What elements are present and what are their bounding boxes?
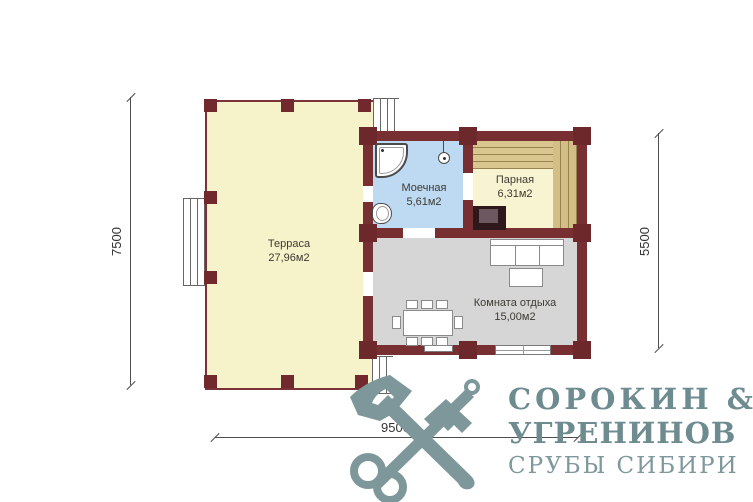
window	[424, 345, 453, 352]
brand-tagline: СРУБЫ СИБИРИ	[508, 450, 753, 482]
log-post	[359, 224, 377, 242]
log-post	[573, 127, 591, 145]
chair-icon	[392, 316, 401, 329]
coffee-table-icon	[509, 268, 543, 287]
log-post	[573, 224, 591, 242]
dimension-tick	[654, 129, 663, 138]
door-terrace-rest	[363, 272, 373, 296]
dimension-line-right	[658, 133, 659, 348]
terrace-post	[281, 375, 294, 388]
dining-table-icon	[403, 310, 453, 336]
chair-icon	[436, 300, 448, 309]
room-area: 15,00м2	[455, 310, 575, 324]
shower-head-icon	[438, 152, 450, 164]
sauna-bench-icon	[473, 141, 553, 169]
axe-and-key-icon	[350, 373, 518, 502]
log-post	[459, 127, 477, 145]
room-area: 5,61м2	[389, 195, 459, 209]
terrace-post	[358, 99, 371, 112]
room-label-washing: Моечная 5,61м2	[389, 181, 459, 209]
log-post	[573, 341, 591, 359]
chair-icon	[406, 300, 418, 309]
chair-icon	[406, 337, 418, 346]
dimension-tick	[126, 381, 135, 390]
dimension-line-left	[130, 97, 131, 385]
log-post	[359, 341, 377, 359]
chair-icon	[421, 337, 433, 346]
wall-right	[577, 131, 587, 355]
stove-icon	[473, 206, 506, 230]
chair-icon	[421, 300, 433, 309]
door-terrace-washing	[363, 186, 373, 202]
room-name: Комната отдыха	[455, 296, 575, 310]
door-washing-rest	[403, 228, 435, 238]
room-name: Терраса	[239, 237, 339, 251]
terrace-post	[204, 375, 217, 388]
dimension-tick	[126, 93, 135, 102]
brand-name-line1: СОРОКИН &	[508, 382, 753, 416]
chair-icon	[436, 337, 448, 346]
room-area: 27,96м2	[239, 251, 339, 265]
terrace-post	[281, 99, 294, 112]
steps-icon	[183, 198, 205, 286]
floor-plan: Терраса 27,96м2 Моечная 5,61м2 Парная 6,…	[0, 0, 753, 502]
window	[495, 345, 551, 355]
room-label-rest: Комната отдыха 15,00м2	[455, 296, 575, 324]
room-label-terrace: Терраса 27,96м2	[239, 237, 339, 265]
terrace-post	[204, 271, 217, 284]
room-name: Моечная	[389, 181, 459, 195]
sofa-icon	[490, 239, 564, 266]
log-post	[459, 341, 477, 359]
dimension-label-right: 5500	[637, 227, 652, 256]
dimension-tick	[654, 344, 663, 353]
room-label-steam: Парная 6,31м2	[480, 173, 550, 201]
brand-logo: СОРОКИН & УГРЕНИНОВ СРУБЫ СИБИРИ	[508, 382, 753, 482]
terrace-post	[204, 191, 217, 204]
log-post	[359, 127, 377, 145]
terrace-post	[204, 99, 217, 112]
sauna-bench-icon	[553, 141, 577, 228]
brand-name-line2: УГРЕНИНОВ	[508, 416, 753, 450]
dimension-label-left: 7500	[109, 227, 124, 256]
door-washing-steam	[463, 173, 473, 200]
room-name: Парная	[480, 173, 550, 187]
wall-left	[363, 131, 373, 355]
room-area: 6,31м2	[480, 187, 550, 201]
